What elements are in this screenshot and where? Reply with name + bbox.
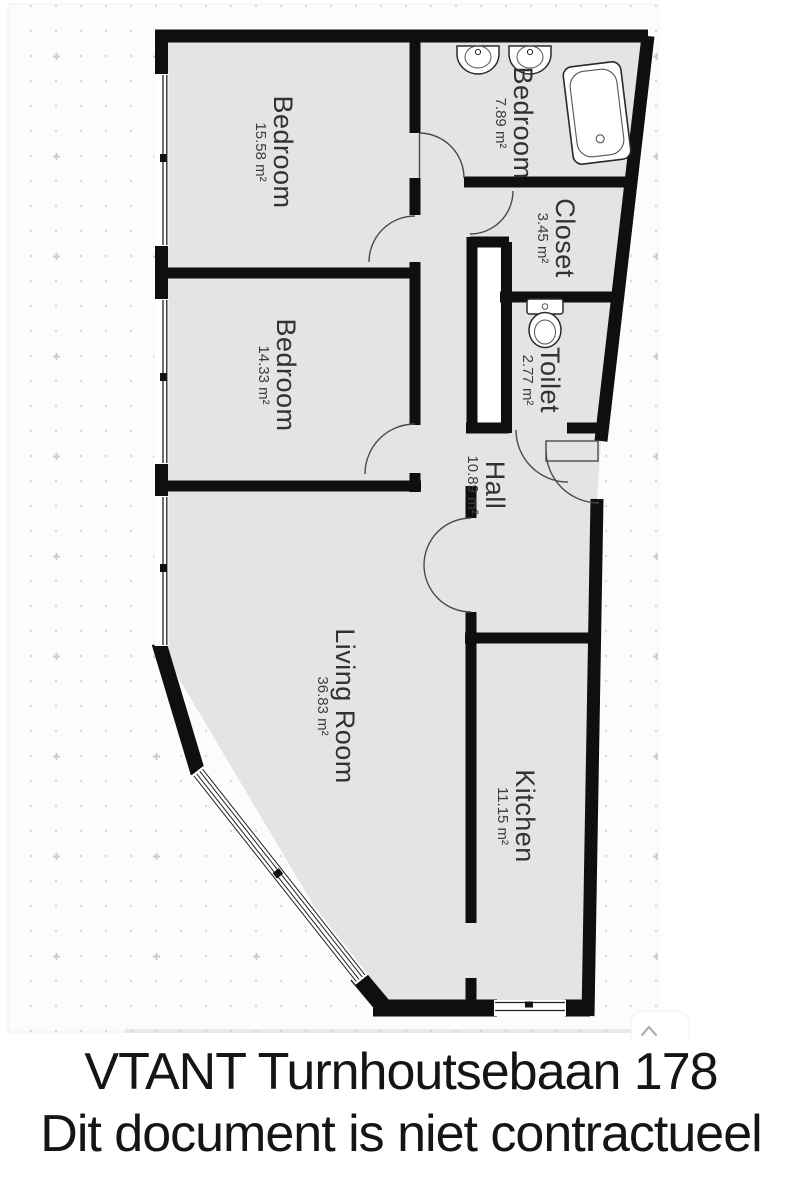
svg-text:10.89 m²: 10.89 m² bbox=[464, 455, 481, 514]
floorplan-svg: Bedroom 15.58 m² Bedroom 7.89 m² Closet … bbox=[0, 0, 802, 1040]
svg-text:Hall: Hall bbox=[480, 461, 510, 510]
caption-address: VTANT Turnhoutsebaan 178 bbox=[0, 1042, 802, 1102]
svg-text:14.33 m²: 14.33 m² bbox=[255, 345, 272, 404]
caption-disclaimer: Dit document is niet contractueel bbox=[0, 1104, 802, 1164]
canvas-edge-shadow bbox=[125, 1029, 660, 1033]
window-left-3 bbox=[155, 496, 169, 646]
svg-text:Bedroom: Bedroom bbox=[271, 318, 301, 431]
bathtub-icon bbox=[562, 61, 632, 165]
room-label-hall: Hall 10.89 m² bbox=[464, 455, 510, 514]
svg-text:11.15 m²: 11.15 m² bbox=[494, 787, 511, 845]
svg-text:Bedroom: Bedroom bbox=[508, 66, 538, 179]
room-label-toilet: Toilet 2.77 m² bbox=[519, 347, 565, 413]
svg-text:Toilet: Toilet bbox=[535, 347, 565, 413]
window-bottom bbox=[494, 1000, 566, 1016]
svg-text:3.45 m²: 3.45 m² bbox=[534, 213, 551, 264]
scroll-to-top-button[interactable] bbox=[631, 1011, 689, 1040]
svg-text:7.89 m²: 7.89 m² bbox=[492, 98, 509, 149]
svg-text:15.58 m²: 15.58 m² bbox=[252, 122, 269, 181]
svg-text:Bedroom: Bedroom bbox=[268, 95, 298, 208]
duct-shaft bbox=[478, 248, 501, 423]
svg-text:36.83 m²: 36.83 m² bbox=[314, 676, 331, 735]
svg-text:Kitchen: Kitchen bbox=[510, 769, 540, 863]
floorplan-canvas: Bedroom 15.58 m² Bedroom 7.89 m² Closet … bbox=[0, 0, 802, 1040]
svg-text:Living Room: Living Room bbox=[330, 628, 360, 784]
svg-text:2.77 m²: 2.77 m² bbox=[519, 355, 536, 406]
window-left-1 bbox=[155, 74, 169, 246]
toilet-icon bbox=[527, 299, 563, 348]
svg-text:Closet: Closet bbox=[550, 198, 580, 278]
window-left-2 bbox=[155, 299, 169, 464]
